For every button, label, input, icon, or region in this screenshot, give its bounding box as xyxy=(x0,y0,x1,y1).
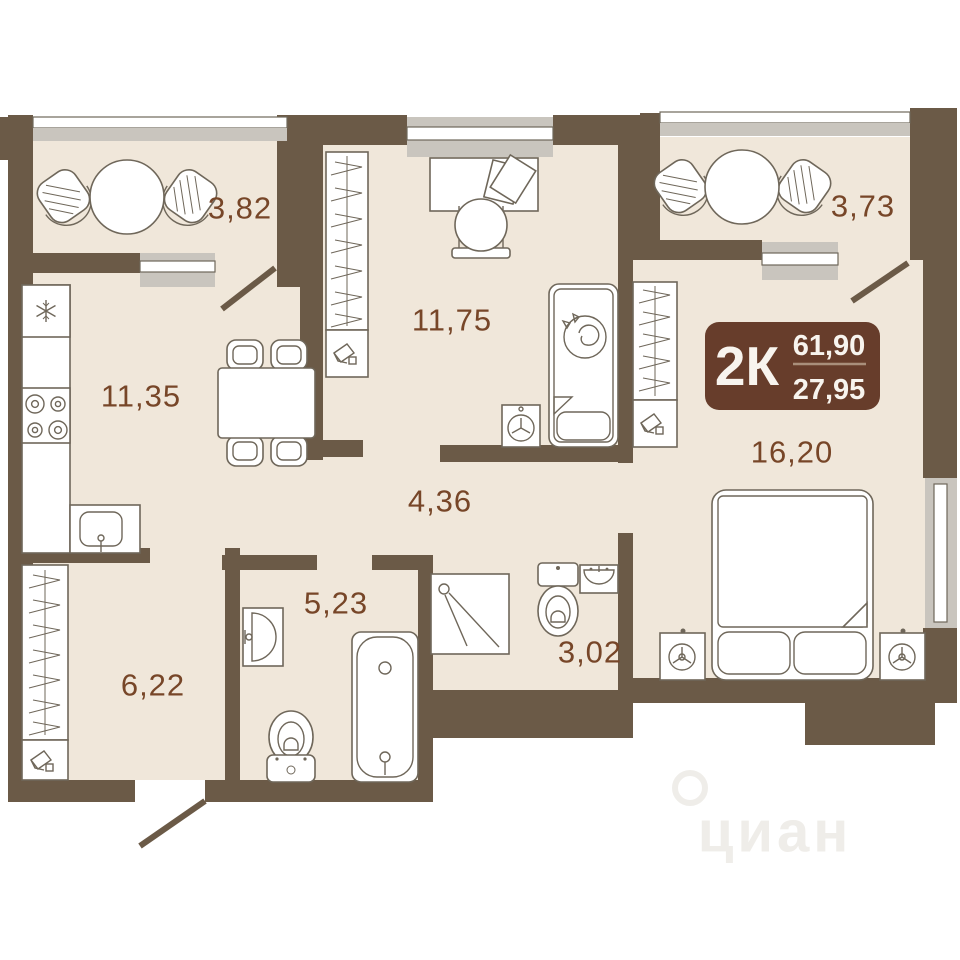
wall-segment xyxy=(428,690,633,738)
area-label-balcony-right: 3,73 xyxy=(831,189,895,224)
badge-area-living: 27,95 xyxy=(793,374,866,406)
area-label-entry-hall: 6,22 xyxy=(121,668,185,703)
toilet-icon xyxy=(267,711,315,782)
bedroom-side-window xyxy=(925,478,957,628)
toilet-icon xyxy=(538,563,578,636)
nightstand-lamp-icon xyxy=(660,629,705,681)
chair-icon xyxy=(271,340,307,370)
area-label-wc: 3,02 xyxy=(558,635,622,670)
wall-segment xyxy=(205,780,433,802)
wall-segment xyxy=(315,440,363,457)
wardrobe-icon xyxy=(22,565,68,740)
stove-icon xyxy=(22,388,70,443)
wardrobe-icon xyxy=(326,152,368,330)
washing-machine-icon xyxy=(502,405,540,447)
apartment-type-badge: 2К 61,90 27,95 xyxy=(705,322,880,410)
wash-basin-icon xyxy=(243,608,283,666)
balcony-left-furniture xyxy=(30,160,224,235)
desk-chair-icon xyxy=(452,199,510,258)
shoe-box-icon xyxy=(633,400,677,447)
shower-icon xyxy=(431,574,509,654)
single-bed-icon xyxy=(549,284,618,447)
wall-segment xyxy=(618,533,633,695)
wall-segment xyxy=(805,678,935,745)
kitchen-balcony-window xyxy=(140,253,215,287)
area-label-bedroom: 16,20 xyxy=(751,435,834,470)
chair-icon xyxy=(227,340,263,370)
floor-plan: 3,82 11,75 3,73 11,35 16,20 4,36 5,23 6,… xyxy=(0,0,960,960)
watermark-pin-icon xyxy=(675,773,705,803)
wall-segment xyxy=(640,240,762,260)
chair-icon xyxy=(227,436,263,466)
kitchen-sink-icon xyxy=(70,505,140,553)
balcony-right-glazing xyxy=(660,112,910,136)
area-label-kitchen: 11,35 xyxy=(101,379,181,414)
wash-basin-icon xyxy=(580,565,618,593)
area-label-balcony-left: 3,82 xyxy=(208,191,272,226)
badge-area-total: 61,90 xyxy=(793,330,866,362)
badge-type: 2К xyxy=(715,335,780,397)
wall-segment xyxy=(618,145,640,260)
bedroom-balcony-window xyxy=(762,242,838,280)
bedroom-door-floor xyxy=(618,463,633,533)
balcony-left-glazing xyxy=(33,117,287,141)
balcony-table-icon xyxy=(90,160,164,234)
wall-segment xyxy=(277,115,407,145)
chair-icon xyxy=(271,436,307,466)
nightstand-lamp-icon xyxy=(880,629,925,681)
entry-hall-furniture xyxy=(22,565,68,780)
double-bed-icon xyxy=(712,490,873,680)
wall-segment xyxy=(8,780,135,802)
wall-segment xyxy=(910,108,957,260)
wall-segment xyxy=(8,253,140,273)
wall-segment xyxy=(923,260,957,478)
area-label-hallway: 4,36 xyxy=(408,484,472,519)
living-room-window xyxy=(407,117,553,157)
watermark-text: циан xyxy=(698,800,853,865)
shoe-box-icon xyxy=(22,740,68,780)
entry-door-leaf xyxy=(140,801,205,846)
wall-segment xyxy=(372,555,420,570)
bathtub-icon xyxy=(352,632,418,782)
wall-segment xyxy=(618,260,633,463)
shoe-box-icon xyxy=(326,330,368,377)
watermark: циан xyxy=(675,773,852,865)
area-label-living-room: 11,75 xyxy=(412,303,492,338)
wall-segment xyxy=(633,678,805,703)
balcony-table-icon xyxy=(705,150,779,224)
fridge-icon xyxy=(22,285,70,337)
balcony-right-furniture xyxy=(647,150,838,225)
area-label-bathroom: 5,23 xyxy=(304,586,368,621)
wall-segment xyxy=(225,548,240,802)
wardrobe-icon xyxy=(633,282,677,400)
